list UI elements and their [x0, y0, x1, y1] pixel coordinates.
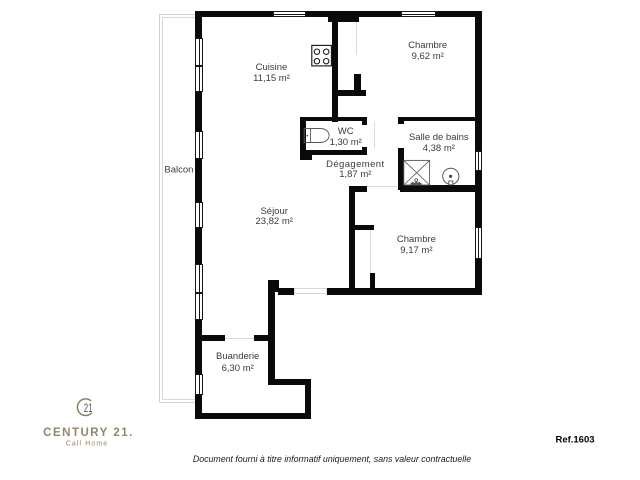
- svg-text:21: 21: [84, 401, 93, 415]
